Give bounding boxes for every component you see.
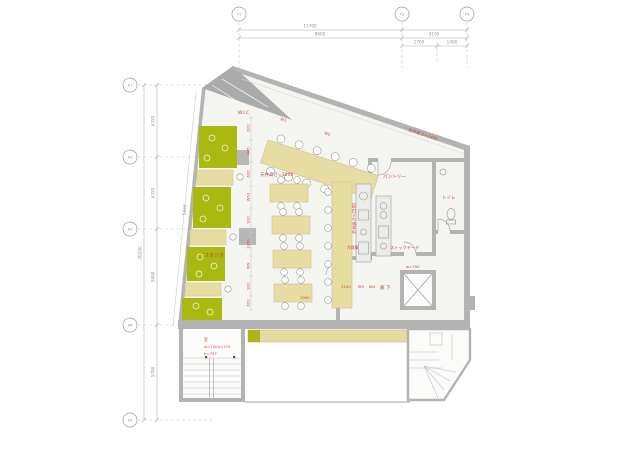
label-studio: スタジオ	[204, 252, 224, 259]
label-corridor: 廊 下	[380, 284, 391, 291]
chain-dim-3: 620	[246, 170, 251, 178]
grid-bubble-x5: X5	[128, 419, 133, 423]
chain-dim-6: 1370	[246, 239, 251, 249]
planter-green-cap	[248, 330, 260, 342]
right-wall-tab	[466, 296, 475, 310]
grid-bubble-y2: Y2	[400, 13, 404, 17]
grid-bubble-y3: Y3	[465, 13, 469, 17]
dim-left-s1: 4350	[151, 115, 156, 126]
grid-bubble-x3: X3	[128, 228, 133, 232]
stair-right-outline	[408, 329, 470, 400]
tag-w5: W5	[358, 284, 365, 289]
door-gap-stockyard	[404, 252, 416, 257]
elevator	[400, 270, 436, 310]
top-grid-dimensions: 11700 8600 3100 1700 1400 Y1 Y2 Y3	[232, 7, 474, 68]
table-1	[270, 184, 308, 202]
bench-green-1	[199, 126, 237, 168]
wall-toilet-left	[432, 158, 436, 254]
door-gap-toilet	[438, 230, 450, 235]
facade-dim-label: 5940	[181, 204, 187, 215]
bottom-wall	[178, 320, 470, 329]
stair-left-floor	[183, 329, 241, 400]
grid-bubble-x1: X1	[128, 84, 133, 88]
chain-dim-1: 620	[246, 124, 251, 132]
chain-dim-8: 910	[246, 282, 251, 290]
note-ev: w=750	[406, 264, 420, 269]
dim-span-left: 8600	[315, 32, 326, 37]
bench-green-4	[182, 298, 222, 320]
chain-dim-9: 620	[246, 299, 251, 307]
note-corridor-dim: 1100	[341, 284, 351, 289]
floor-plan-page: 11700 8600 3100 1700 1400 Y1 Y2 Y3	[0, 0, 640, 452]
chain-dim-4: W10	[246, 192, 251, 201]
dim-span-right: 3100	[429, 32, 440, 37]
lounge-table-2	[190, 230, 226, 245]
door-gap-pantry	[378, 158, 391, 163]
table-2	[272, 216, 310, 234]
stair-left	[179, 328, 245, 402]
label-wic: W.I.C	[238, 110, 249, 116]
note-fridge: 冷蔵庫	[347, 245, 359, 250]
note-window-line3: h=757	[204, 351, 217, 356]
note-ceiling-main: 天井高さ=3200	[260, 171, 293, 178]
grid-bubble-x4: X4	[128, 324, 133, 328]
terrace	[245, 330, 410, 402]
dim-left-s4: 5700	[151, 366, 156, 377]
dim-left-s3: 5800	[151, 271, 156, 282]
x-grid-bubbles: X1 X2 X3 X4 X5	[123, 78, 137, 427]
dim-total-top: 11700	[303, 24, 317, 29]
stair-right	[408, 329, 470, 400]
note-window-line1: 窓	[204, 337, 208, 342]
note-table-dim: 1090	[300, 295, 310, 300]
lounge-table-1	[197, 170, 233, 185]
dim-left-s2: 4350	[151, 187, 156, 198]
note-ceiling-counter: 天井高さ=2500	[351, 203, 358, 234]
dim-left-total: 20200	[138, 246, 143, 260]
label-toilet: トイレ	[442, 196, 456, 201]
grid-dashed-lines	[239, 22, 467, 68]
note-window-line2: w=700×1170	[204, 344, 231, 349]
floor-plan-drawing: 11700 8600 3100 1700 1400 Y1 Y2 Y3	[0, 0, 640, 452]
dim-sub-left: 1700	[414, 40, 425, 45]
grid-bubble-y1: Y1	[237, 13, 241, 17]
label-pantry: パントリー	[383, 174, 406, 180]
chain-dim-2: 845	[246, 147, 251, 155]
lounge-table-3	[185, 283, 221, 296]
chain-dim-7: W9	[246, 262, 251, 269]
y-grid-bubbles: Y1 Y2 Y3	[232, 7, 474, 21]
dim-sub-right: 1400	[447, 40, 458, 45]
grid-bubble-x2: X2	[128, 156, 133, 160]
bench-green-2	[193, 187, 231, 228]
chain-dim-5: 910	[246, 216, 251, 224]
tag-w4: W4	[369, 284, 376, 289]
planter-strip	[248, 330, 408, 342]
table-3	[273, 250, 311, 268]
